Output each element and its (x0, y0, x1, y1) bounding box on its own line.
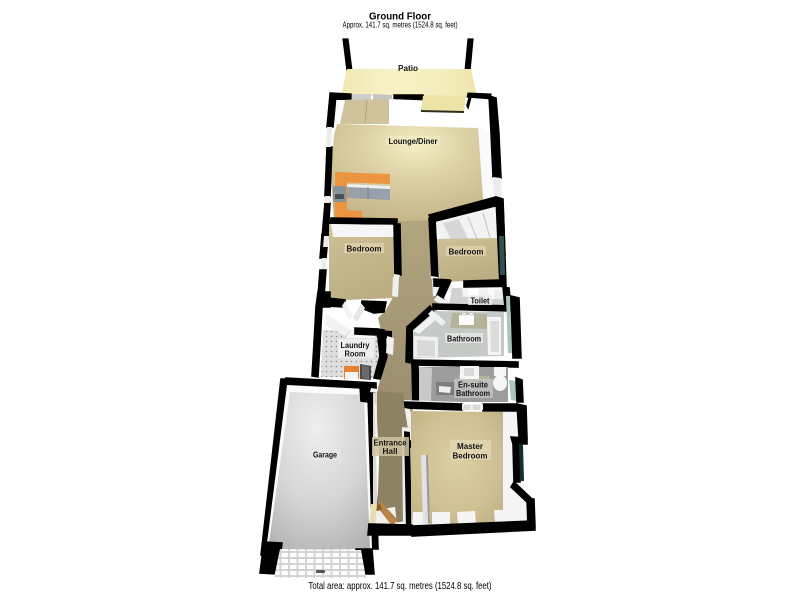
svg-text:Bathroom: Bathroom (447, 335, 481, 344)
svg-text:Hall: Hall (383, 447, 398, 456)
svg-text:Lounge/Diner: Lounge/Diner (389, 137, 438, 146)
svg-text:Toilet: Toilet (471, 297, 490, 306)
svg-text:Bedroom: Bedroom (347, 245, 382, 254)
svg-text:Bedroom: Bedroom (449, 248, 484, 257)
svg-text:Approx. 141.7 sq. metres (1524: Approx. 141.7 sq. metres (1524.8 sq. fee… (343, 20, 458, 30)
svg-text:Total area: approx. 141.7 sq.: Total area: approx. 141.7 sq. metres (15… (309, 581, 492, 592)
svg-text:Patio: Patio (398, 64, 418, 73)
svg-text:Garage: Garage (313, 450, 337, 460)
svg-text:Bedroom: Bedroom (453, 452, 488, 461)
svg-text:Room: Room (345, 350, 366, 359)
svg-text:Bathroom: Bathroom (456, 389, 490, 398)
svg-text:Master: Master (457, 442, 483, 451)
